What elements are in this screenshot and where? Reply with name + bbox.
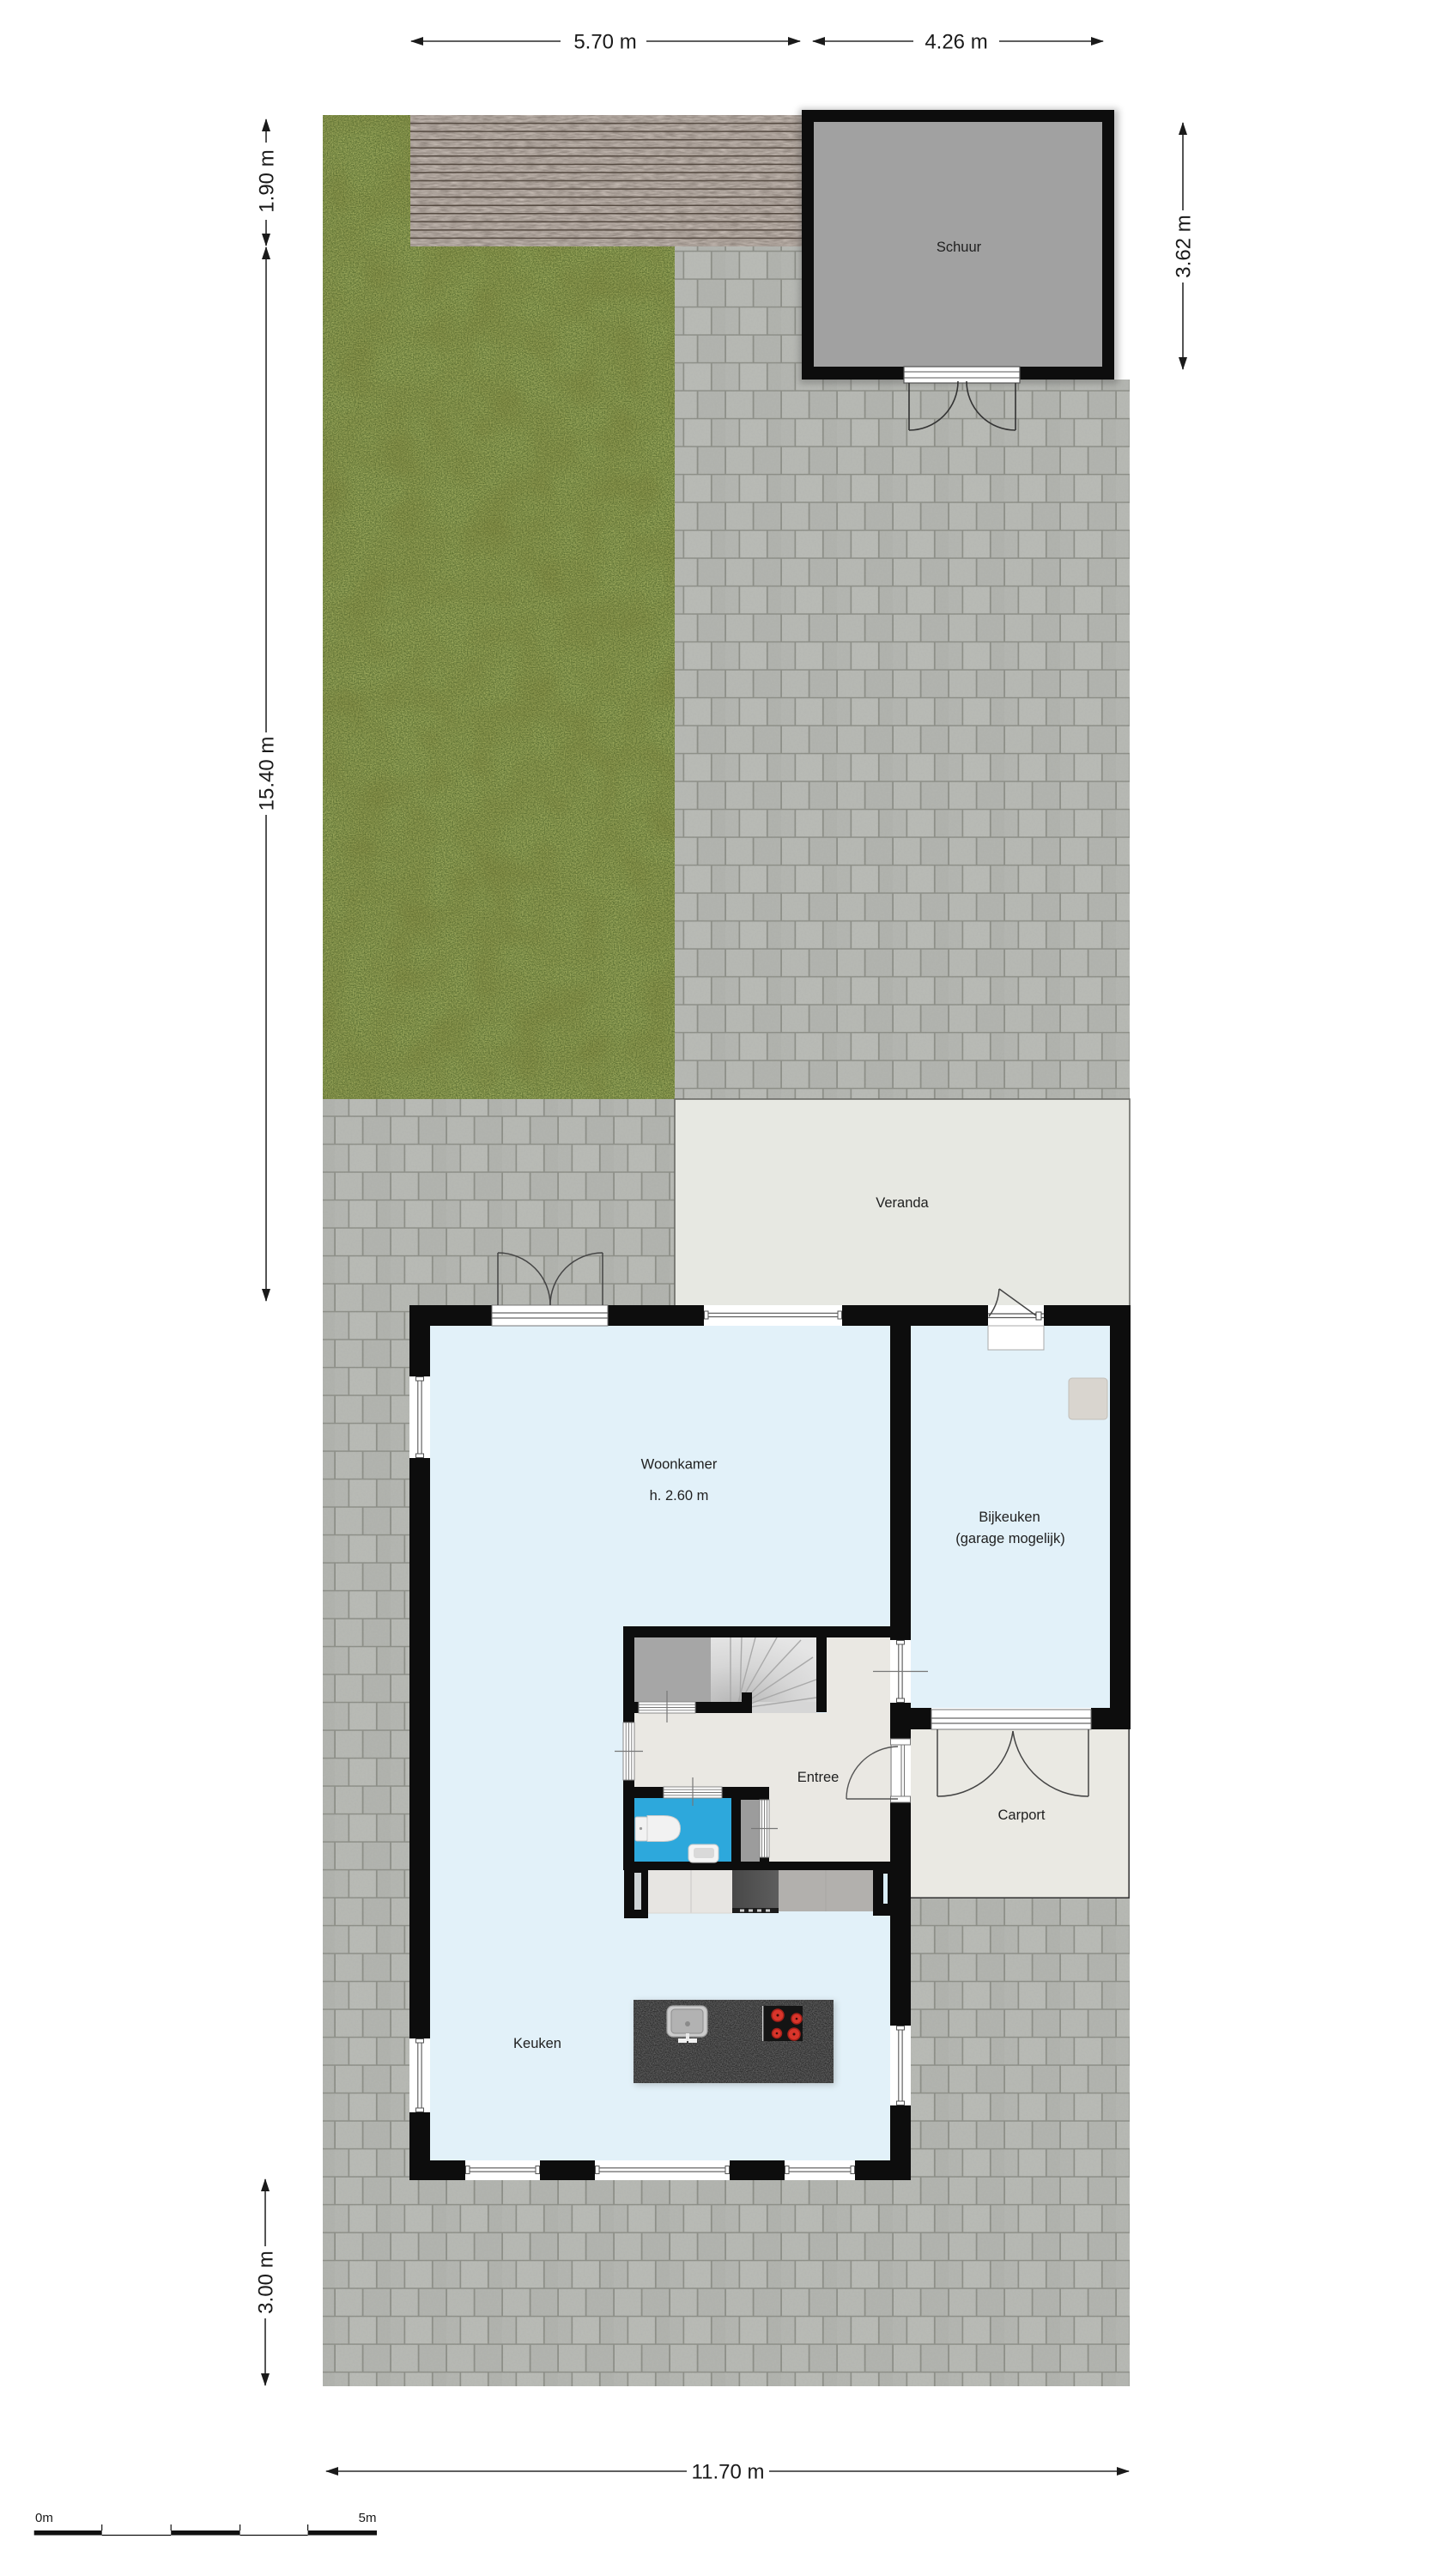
svg-text:Veranda: Veranda bbox=[876, 1195, 929, 1211]
svg-text:15.40 m: 15.40 m bbox=[256, 737, 279, 811]
svg-text:3.62 m: 3.62 m bbox=[1173, 215, 1196, 277]
svg-text:11.70 m: 11.70 m bbox=[692, 2461, 765, 2484]
svg-text:Entree: Entree bbox=[797, 1770, 840, 1785]
svg-text:h. 2.60 m: h. 2.60 m bbox=[650, 1488, 709, 1504]
svg-text:Carport: Carport bbox=[997, 1807, 1045, 1823]
svg-text:Keuken: Keuken bbox=[513, 2036, 561, 2051]
svg-text:5m: 5m bbox=[359, 2511, 377, 2525]
svg-text:0m: 0m bbox=[35, 2511, 53, 2525]
svg-text:Schuur: Schuur bbox=[937, 240, 982, 255]
svg-text:(garage mogelijk): (garage mogelijk) bbox=[955, 1531, 1064, 1546]
svg-text:Bijkeuken: Bijkeuken bbox=[979, 1510, 1040, 1525]
svg-text:3.00 m: 3.00 m bbox=[255, 2251, 278, 2313]
svg-text:5.70 m: 5.70 m bbox=[573, 31, 636, 54]
svg-text:1.90 m: 1.90 m bbox=[256, 149, 279, 212]
svg-text:4.26 m: 4.26 m bbox=[925, 31, 987, 54]
svg-text:Woonkamer: Woonkamer bbox=[641, 1457, 718, 1473]
